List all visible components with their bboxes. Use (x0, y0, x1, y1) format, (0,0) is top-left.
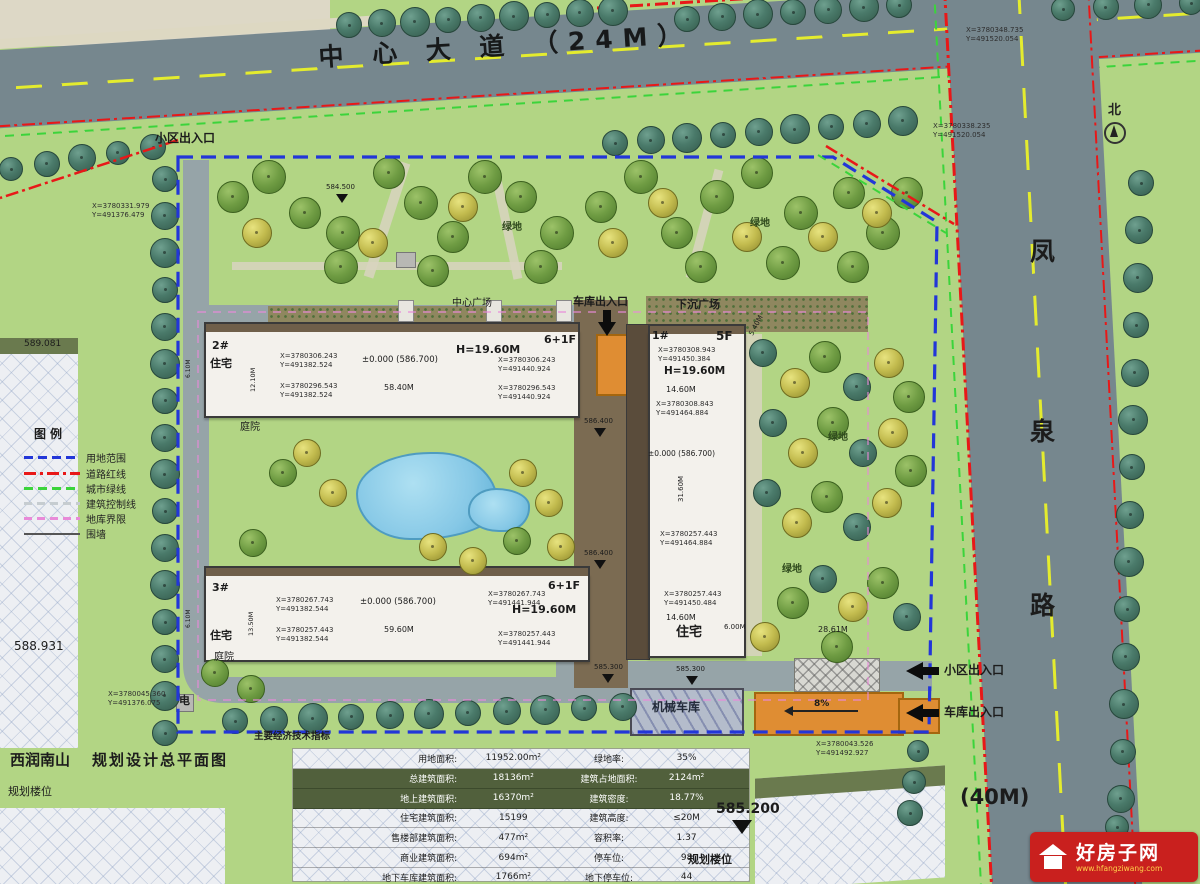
tree-icon (745, 118, 773, 146)
tree-icon (252, 160, 286, 194)
tree-icon (780, 114, 810, 144)
watermark-url: www.hfangziwang.com (1076, 864, 1162, 873)
tree-icon (849, 439, 877, 467)
tree-icon (808, 222, 838, 252)
building-1-depth-dim: 31.60M (678, 476, 686, 502)
tree-icon (843, 513, 871, 541)
entrance-side-arrow-icon (906, 662, 939, 680)
table-row: 售楼部建筑面积:477m²容积率:1.37 (293, 828, 749, 848)
entrance-canopy-3 (556, 300, 572, 322)
tree-icon (788, 438, 818, 468)
tree-icon (152, 720, 178, 746)
watermark: 好房子网 www.hfangziwang.com (1030, 832, 1198, 882)
tree-icon (750, 622, 780, 652)
tree-icon (566, 0, 594, 27)
site-plan-canvas: 中 心 大 道 （24M） (0, 0, 1200, 884)
side-road-char-2: 泉 (1030, 418, 1055, 446)
green-label-4: 绿地 (782, 564, 802, 575)
tree-icon (530, 695, 560, 725)
tree-icon (872, 488, 902, 518)
tree-icon (674, 6, 700, 32)
tree-icon (685, 251, 717, 283)
tree-icon (893, 603, 921, 631)
building-1 (648, 332, 746, 658)
side-road-char-3: 路 (1030, 592, 1055, 620)
tree-icon (151, 534, 179, 562)
elevation-585300-a: 585.300 (594, 664, 623, 672)
tree-icon (242, 218, 272, 248)
tree-icon (1114, 547, 1144, 577)
tree-icon (151, 645, 179, 673)
planned-building-west (0, 338, 78, 748)
tree-icon (319, 479, 347, 507)
building-3-se-coord: X=3780257.443Y=491441.944 (498, 630, 555, 647)
building-2-length-dim: 58.40M (384, 384, 414, 393)
elevation-586400-a: 586.400 (584, 418, 613, 426)
building-3-depth-dim: 13.50M (248, 612, 255, 636)
building-2-floors: 6+1F (544, 334, 576, 346)
building-2-nw-coord: X=3780306.243Y=491382.524 (280, 352, 337, 369)
tree-icon (637, 126, 665, 154)
tree-icon (1125, 216, 1153, 244)
tree-icon (293, 439, 321, 467)
tree-icon (624, 160, 658, 194)
tree-icon (700, 180, 734, 214)
legend-line-boundary (24, 456, 80, 459)
building-2-height: H=19.60M (456, 344, 520, 356)
tree-icon (602, 130, 628, 156)
tree-icon (298, 703, 328, 733)
ramp-arrow-head (784, 706, 793, 716)
green-label-1: 绿地 (502, 222, 522, 233)
pond-small (468, 488, 530, 532)
building-1-width-bottom-dim: 14.60M (666, 614, 696, 623)
tree-icon (777, 587, 809, 619)
legend-item-wall: 围墙 (24, 526, 106, 541)
building-3-height: H=19.60M (512, 604, 576, 616)
tree-icon (448, 192, 478, 222)
tree-icon (376, 701, 404, 729)
tree-icon (1107, 785, 1135, 813)
tree-icon (753, 479, 781, 507)
tree-icon (503, 527, 531, 555)
tree-icon (1116, 501, 1144, 529)
tree-icon (547, 533, 575, 561)
building-1-width-top-dim: 14.60M (666, 386, 696, 395)
tree-icon (336, 12, 362, 38)
tree-icon (766, 246, 800, 280)
electric-label: 电 (179, 695, 190, 707)
tree-icon (505, 181, 537, 213)
tree-icon (260, 706, 288, 734)
tree-icon (150, 570, 180, 600)
building-1-level: ±0.000 (586.700) (648, 450, 715, 458)
tree-icon (902, 770, 926, 794)
tree-icon (455, 700, 481, 726)
building-2-se-coord: X=3780296.543Y=491440.924 (498, 384, 555, 401)
building-3-id: 3# (212, 582, 229, 594)
tree-icon (151, 202, 179, 230)
entrance-top-label: 小区出入口 (155, 132, 215, 145)
tree-icon (1110, 739, 1136, 765)
garage-entrance-arrow-icon (598, 310, 616, 336)
tree-icon (661, 217, 693, 249)
tree-icon (833, 177, 865, 209)
elevation-585300-a-marker (602, 674, 614, 683)
tree-icon (326, 216, 360, 250)
tree-icon (780, 0, 806, 25)
garage-entrance-top-label: 车库出入口 (573, 296, 628, 308)
tree-icon (895, 455, 927, 487)
table-row: 住宅建筑面积:15199建筑高度:≤20M (293, 809, 749, 829)
tree-icon (239, 529, 267, 557)
elevation-585300-b: 585.300 (676, 666, 705, 674)
green-label-3: 绿地 (828, 432, 848, 443)
tree-icon (1114, 596, 1140, 622)
planned-label-2: 规划楼位 (688, 854, 732, 866)
watermark-name: 好房子网 (1076, 842, 1162, 864)
tree-icon (782, 508, 812, 538)
tree-icon (862, 198, 892, 228)
tree-icon (598, 228, 628, 258)
elevation-585300-b-marker (686, 676, 698, 685)
tree-icon (459, 547, 487, 575)
ramp-arrow-line (792, 710, 858, 712)
tree-icon (509, 459, 537, 487)
table-row: 地下车库建筑面积:1766m²地下停车位:44 (293, 868, 749, 884)
planned-building-southwest (0, 808, 225, 884)
tree-icon (373, 157, 405, 189)
tree-icon (780, 368, 810, 398)
side-road-width-label: (40M) (960, 786, 1029, 809)
elevation-586400-b-marker (594, 560, 606, 569)
tree-icon (358, 228, 388, 258)
tree-icon (338, 704, 364, 730)
tree-icon (708, 3, 736, 31)
tree-icon (1128, 170, 1154, 196)
tree-icon (269, 459, 297, 487)
tree-icon (152, 166, 178, 192)
table-row: 用地面积:11952.00m²绿地率:35% (293, 749, 749, 769)
tree-icon (837, 251, 869, 283)
pavilion (396, 252, 416, 268)
building-1-floors: 5F (716, 330, 733, 343)
tree-icon (467, 4, 495, 32)
tree-icon (811, 481, 843, 513)
tree-icon (1119, 454, 1145, 480)
tree-icon (34, 151, 60, 177)
building-1-id: 1# (652, 330, 669, 342)
tree-icon (540, 216, 574, 250)
building-3-sw-coord: X=3780257.443Y=491382.544 (276, 626, 333, 643)
garage-ramp-side (754, 692, 904, 736)
tree-icon (417, 255, 449, 287)
legend-item-redline: 道路红线 (24, 466, 126, 481)
tree-icon (68, 144, 96, 172)
legend-line-basement (24, 517, 80, 520)
tree-icon (1121, 359, 1149, 387)
tree-icon (404, 186, 438, 220)
legend-item-greenline: 城市绿线 (24, 481, 126, 496)
building-3-type: 住宅 (210, 630, 232, 642)
building-1-band (626, 324, 650, 660)
garage-side-arrow-icon (906, 704, 939, 722)
tree-icon (1109, 689, 1139, 719)
building-2-type: 住宅 (210, 358, 232, 370)
table-header: 主要经济技术指标 (254, 732, 330, 742)
tree-icon (609, 693, 637, 721)
economic-indicator-table: 用地面积:11952.00m²绿地率:35% 总建筑面积:18136m²建筑占地… (292, 748, 750, 882)
table-row: 商业建筑面积:694m²停车位:98 (293, 848, 749, 868)
planned-label-1: 规划楼位 (8, 786, 52, 798)
tree-icon (888, 106, 918, 136)
dim-2861-label: 28.61M (818, 626, 848, 635)
tree-icon (150, 459, 180, 489)
tree-icon (891, 177, 923, 209)
tree-icon (821, 631, 853, 663)
legend-line-wall (24, 533, 80, 535)
tree-icon (152, 277, 178, 303)
mech-garage-label: 机械车库 (652, 701, 700, 714)
legend-line-greenline (24, 487, 80, 490)
building-1-c2-coord: X=3780308.843Y=491464.884 (656, 400, 713, 417)
tree-icon (809, 341, 841, 373)
tree-icon (838, 592, 868, 622)
tree-icon (400, 7, 430, 37)
courtyard-label-1: 庭院 (240, 422, 260, 433)
tree-icon (867, 567, 899, 599)
building-3 (204, 574, 590, 662)
tree-icon (743, 0, 773, 29)
coord-west: X=3780331.979Y=491376.479 (92, 202, 149, 219)
tree-icon (1123, 312, 1149, 338)
tree-icon (152, 498, 178, 524)
tree-icon (818, 114, 844, 140)
building-3-level: ±0.000 (586.700) (360, 598, 436, 607)
house-icon (1038, 844, 1068, 870)
tree-icon (468, 160, 502, 194)
legend-title: 图例 (34, 428, 66, 441)
tree-icon (152, 609, 178, 635)
drawing-title: 规划设计总平面图 (92, 752, 228, 769)
tree-icon (907, 740, 929, 762)
tree-icon (524, 250, 558, 284)
building-2-sw-coord: X=3780296.543Y=491382.524 (280, 382, 337, 399)
table-row: 总建筑面积:18136m²建筑占地面积:2124m² (293, 769, 749, 789)
tree-icon (853, 110, 881, 138)
plaza-left-label: 中心广场 (452, 298, 492, 309)
garage-ramp-top (596, 334, 630, 396)
tree-icon (648, 188, 678, 218)
tree-icon (571, 695, 597, 721)
building-3-side-dim: 6.10M (186, 609, 193, 628)
table-row: 地上建筑面积:16370m²建筑密度:18.77% (293, 789, 749, 809)
tree-icon (324, 250, 358, 284)
green-label-2: 绿地 (750, 218, 770, 229)
tree-icon (672, 123, 702, 153)
elevation-585200: 585.200 (716, 802, 780, 817)
ramp-slope-label: 8% (814, 700, 829, 710)
tree-icon (222, 708, 248, 734)
elevation-586400-a-marker (594, 428, 606, 437)
coord-top-right-inner: X=3780338.235Y=491520.054 (933, 122, 990, 139)
project-name: 西润南山 (10, 752, 70, 769)
tree-icon (151, 424, 179, 452)
tree-icon (106, 141, 130, 165)
building-2-level: ±0.000 (586.700) (362, 356, 438, 365)
tree-icon (534, 2, 560, 28)
tree-icon (289, 197, 321, 229)
elevation-584500: 584.500 (326, 184, 355, 192)
courtyard-label-2: 庭院 (214, 652, 234, 663)
tree-icon (152, 388, 178, 414)
north-label: 北 (1108, 104, 1121, 118)
building-1-height: H=19.60M (664, 366, 725, 378)
legend-item-boundary: 用地范围 (24, 450, 126, 465)
coord-south-east: X=3780043.526Y=491492.927 (816, 740, 873, 757)
entrance-side-label: 小区出入口 (944, 664, 1004, 677)
north-compass-icon (1104, 122, 1126, 144)
tree-icon (710, 122, 736, 148)
building-2-depth-dim: 12.10M (250, 368, 257, 392)
building-1-c3-coord: X=3780257.443Y=491464.884 (660, 530, 717, 547)
tree-icon (419, 533, 447, 561)
dim-600-label: 6.00M (724, 624, 746, 632)
tree-icon (150, 238, 180, 268)
parking-area (794, 658, 880, 692)
tree-icon (535, 489, 563, 517)
tree-icon (493, 697, 521, 725)
building-3-floors: 6+1F (548, 580, 580, 592)
building-3-length-dim: 59.60M (384, 626, 414, 635)
building-1-c1-coord: X=3780308.943Y=491450.384 (658, 346, 715, 363)
building-2 (204, 330, 580, 418)
tree-icon (217, 181, 249, 213)
tree-icon (1123, 263, 1153, 293)
tree-icon (878, 418, 908, 448)
tree-icon (150, 349, 180, 379)
legend-line-control (24, 502, 80, 505)
side-road-char-1: 凤 (1030, 238, 1055, 266)
coord-south-west: X=3780045.360Y=491376.075 (108, 690, 165, 707)
tree-icon (435, 7, 461, 33)
tree-icon (585, 191, 617, 223)
elevation-589081: 589.081 (24, 340, 61, 350)
tree-icon (809, 565, 837, 593)
tree-icon (414, 699, 444, 729)
tree-icon (897, 800, 923, 826)
tree-icon (759, 409, 787, 437)
elevation-586400-b: 586.400 (584, 550, 613, 558)
tree-icon (749, 339, 777, 367)
tree-icon (237, 675, 265, 703)
building-2-ne-coord: X=3780306.243Y=491440.924 (498, 356, 555, 373)
building-2-side-dim: 6.10M (186, 359, 193, 378)
garage-side-label: 车库出入口 (944, 706, 1004, 719)
tree-icon (741, 157, 773, 189)
elevation-584500-marker (336, 194, 348, 203)
building-1-type: 住宅 (676, 626, 702, 640)
legend-item-control: 建筑控制线 (24, 496, 136, 511)
entrance-canopy-1 (398, 300, 414, 322)
elevation-585200-marker (732, 820, 752, 834)
elevation-588931: 588.931 (14, 640, 64, 653)
building-3-nw-coord: X=3780267.743Y=491382.544 (276, 596, 333, 613)
legend-line-redline (24, 472, 80, 475)
tree-icon (874, 348, 904, 378)
tree-icon (201, 659, 229, 687)
tree-icon (843, 373, 871, 401)
tree-icon (151, 313, 179, 341)
tree-icon (1112, 643, 1140, 671)
plaza-right-label: 下沉广场 (676, 299, 720, 311)
coord-top-right-outer: X=3780348.735Y=491520.054 (966, 26, 1023, 43)
legend-item-basement: 地库界限 (24, 511, 126, 526)
building-1-c4-coord: X=3780257.443Y=491450.484 (664, 590, 721, 607)
building-2-id: 2# (212, 340, 229, 352)
tree-icon (1118, 405, 1148, 435)
tree-icon (893, 381, 925, 413)
tree-icon (437, 221, 469, 253)
tree-icon (0, 157, 23, 181)
